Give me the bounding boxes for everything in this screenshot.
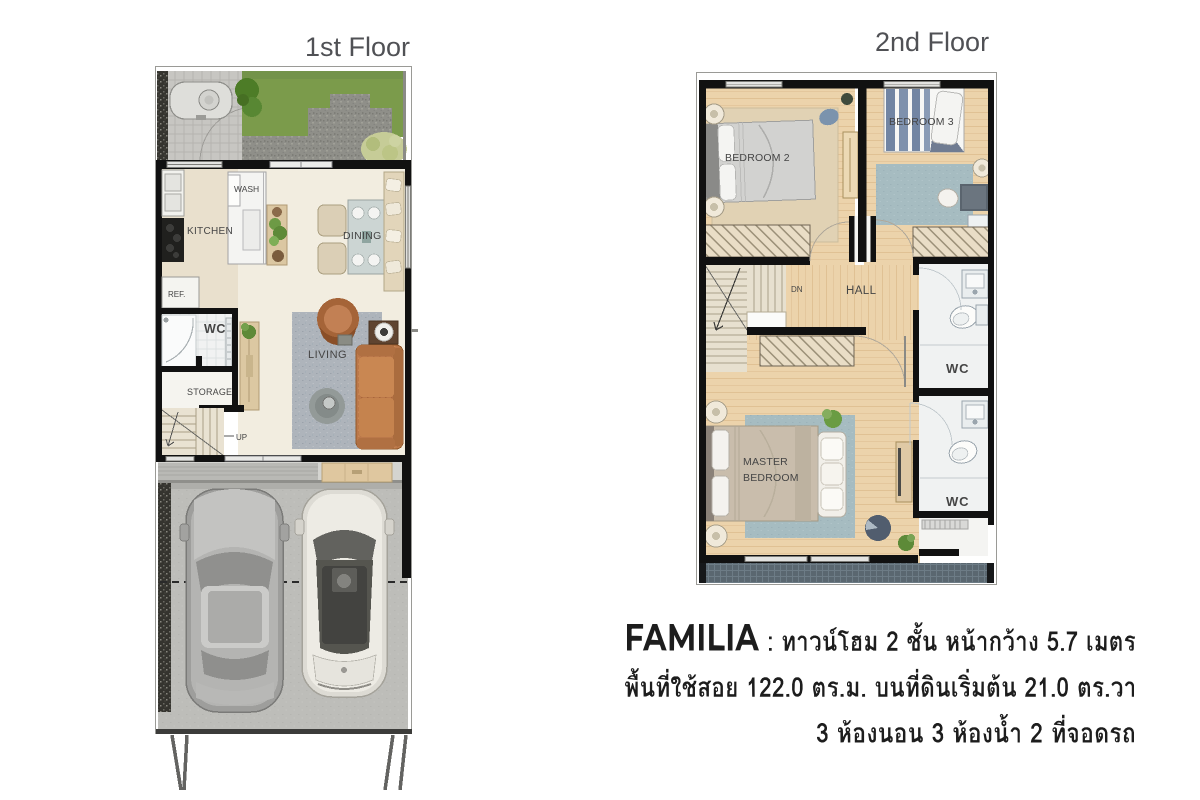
svg-text:WC: WC [204,322,226,336]
svg-text:UP: UP [236,433,247,442]
svg-text:DN: DN [791,285,803,294]
svg-text:WC: WC [946,494,969,509]
svg-text:DINING: DINING [343,230,382,242]
svg-text:BEDROOM: BEDROOM [743,472,799,484]
svg-text:KITCHEN: KITCHEN [187,226,233,237]
svg-text:LIVING: LIVING [308,349,347,361]
svg-text:WC: WC [946,361,969,376]
svg-text:STORAGE: STORAGE [187,387,232,397]
svg-text:MASTER: MASTER [743,456,788,468]
svg-text:BEDROOM 2: BEDROOM 2 [725,152,790,164]
svg-text:HALL: HALL [846,285,877,297]
svg-text:REF.: REF. [168,290,185,299]
svg-text:BEDROOM 3: BEDROOM 3 [889,116,954,128]
svg-text:WASH: WASH [234,184,259,194]
